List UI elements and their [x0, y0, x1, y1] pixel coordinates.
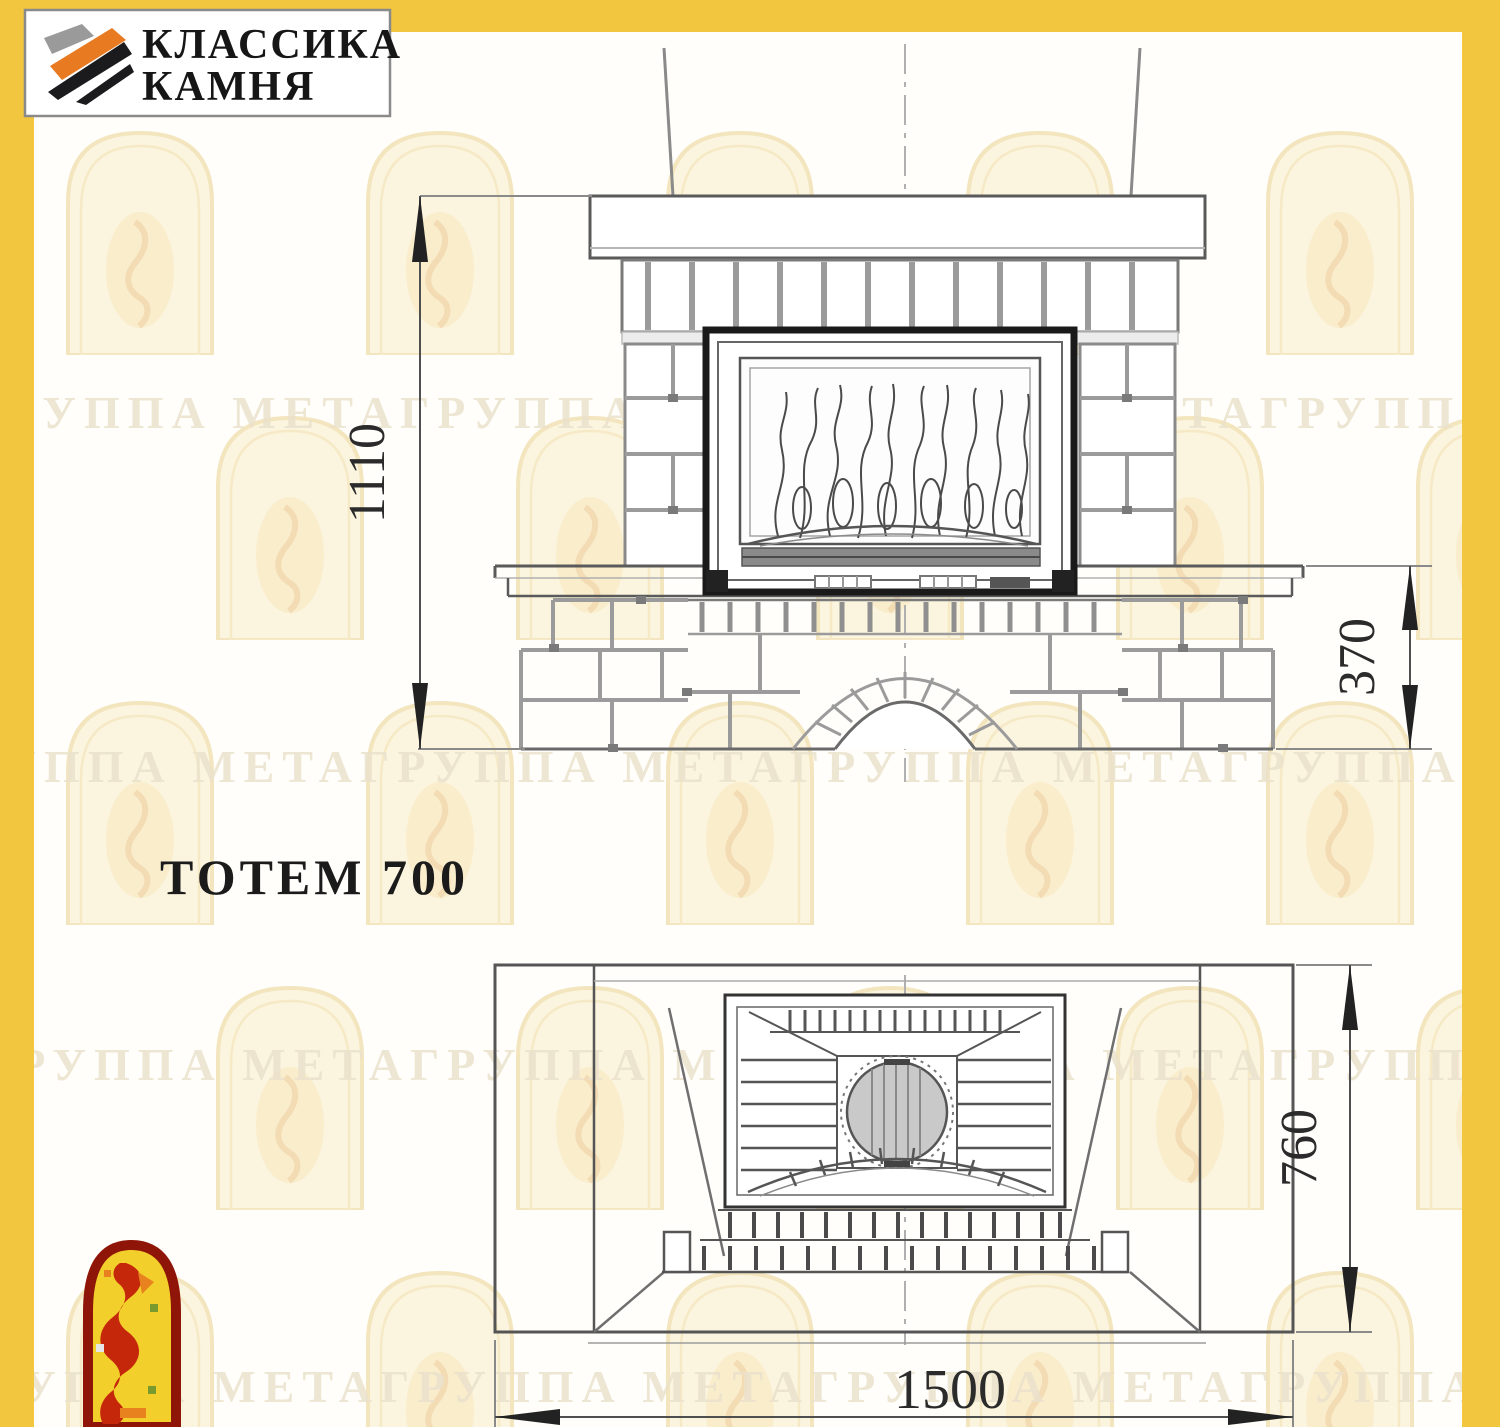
pier-right [1080, 344, 1175, 566]
watermark-text-row: ГРУППА МЕТАГРУППА МЕТАГРУППА МЕТАГРУППА … [0, 1361, 1500, 1412]
firebox-insert [706, 330, 1074, 592]
dim-label-depth: 760 [1271, 1109, 1328, 1187]
logo-text-line1: КЛАССИКА [142, 22, 402, 68]
catalog-page: ГРУППА МЕТАГРУППА МЕТАГРУППА МЕТАГРУППА … [0, 0, 1500, 1427]
dim-label-overall-height: 1110 [339, 423, 396, 523]
plan-front-grille [662, 1210, 1128, 1272]
logo-box: КЛАССИКА КАМНЯ [25, 10, 402, 116]
mantel-slab [590, 196, 1205, 258]
page-frame-right [1462, 32, 1500, 1427]
logo-text-line2: КАМНЯ [142, 64, 315, 110]
dim-label-plinth-height: 370 [1329, 618, 1386, 696]
page-title: ТОТЕМ 700 [160, 849, 469, 905]
page-frame-left [0, 32, 34, 1427]
drawing-canvas: ГРУППА МЕТАГРУППА МЕТАГРУППА МЕТАГРУППА … [0, 0, 1500, 1427]
dim-label-width: 1500 [894, 1359, 1006, 1421]
vent-slots [815, 576, 1030, 588]
plan-firebox-insert [725, 995, 1065, 1207]
mascot-emblem [88, 1245, 176, 1427]
